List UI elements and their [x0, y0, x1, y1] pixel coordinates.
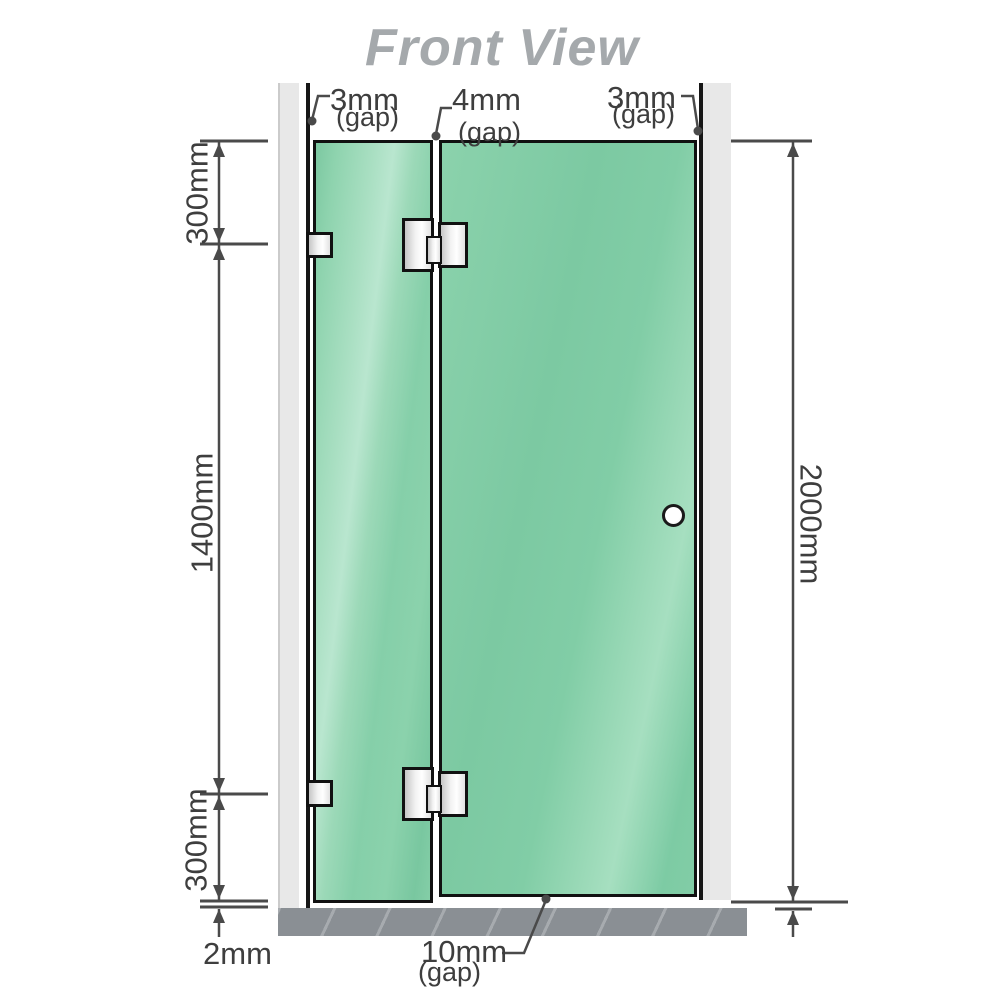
dim-label-left-middle: 1400mm — [187, 453, 218, 574]
hinge-top-bridge — [426, 236, 442, 264]
door-glass-panel — [439, 140, 697, 897]
door-knob — [662, 504, 685, 527]
gap-label-top-left-note: (gap) — [336, 104, 399, 131]
dim-label-floor-gap: 2mm — [203, 938, 272, 969]
gap-label-bottom-note: (gap) — [418, 959, 481, 986]
dim-label-left-lower: 300mm — [181, 788, 212, 891]
page-title: Front View — [365, 18, 665, 78]
hinge-bottom-bridge — [426, 785, 442, 813]
wall-bracket-bottom — [306, 780, 333, 807]
gap-label-top-middle-note: (gap) — [458, 119, 521, 146]
wall-channel-right — [703, 83, 731, 900]
dim-label-right-total: 2000mm — [796, 464, 827, 585]
dim-label-left-upper: 300mm — [182, 141, 213, 244]
shower-screen-front-view-diagram: Front View — [0, 0, 1000, 1000]
gap-label-top-right-note: (gap) — [612, 101, 675, 128]
wall-edge-line-right — [699, 83, 703, 900]
gap-label-top-middle-value: 4mm — [452, 84, 521, 115]
hinge-top-plate-right — [438, 222, 468, 268]
wall-channel-left — [278, 83, 299, 908]
wall-bracket-top — [306, 232, 333, 258]
floor-base — [278, 908, 747, 936]
hinge-bottom-plate-right — [438, 771, 468, 817]
